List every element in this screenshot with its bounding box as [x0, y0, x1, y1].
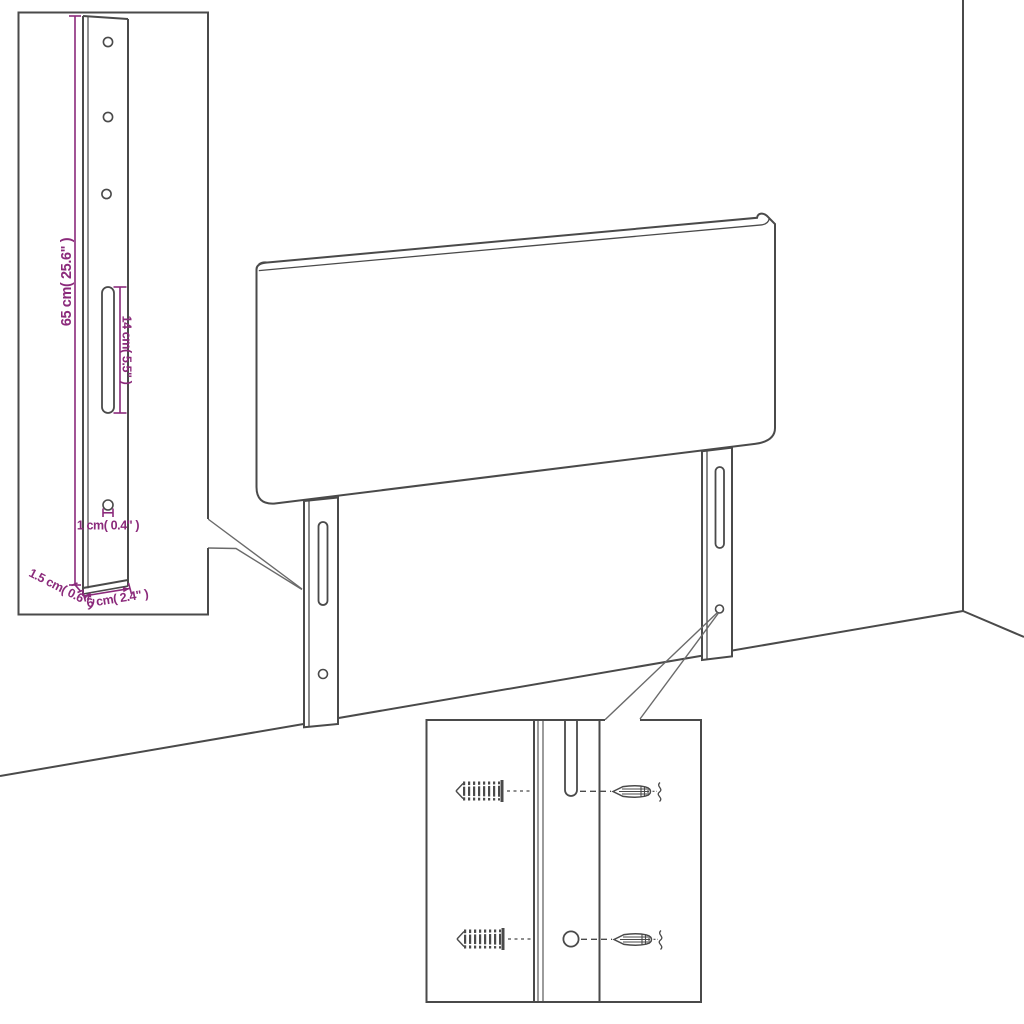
bracket-slot	[102, 287, 114, 413]
left-leg-slot	[319, 522, 328, 605]
dim-height-label: 65 cm( 25.6" )	[59, 237, 75, 326]
bottom-box-leader-line-left	[605, 613, 718, 720]
detail-box-bottom-border	[427, 720, 702, 1002]
bracket-screw-hole-3	[102, 189, 111, 198]
headboard-panel	[257, 214, 776, 504]
bottom-box-leader-line-right	[640, 613, 719, 719]
closeup-leg-hole	[563, 931, 578, 946]
left-box-leader-line-upper	[208, 519, 302, 589]
detail-box-leg-dimensions: 65 cm( 25.6" ) 14 cm( 5.5" ) 1 cm( 0.4" …	[19, 13, 209, 615]
bracket-bottom-hole	[103, 500, 113, 510]
right-leg-slot	[716, 467, 725, 548]
right-leg-hole	[716, 605, 724, 613]
detail-box-mounting-hardware	[427, 720, 702, 1002]
headboard-dimension-diagram: 65 cm( 25.6" ) 14 cm( 5.5" ) 1 cm( 0.4" …	[0, 0, 1024, 1024]
headboard-left-leg	[304, 498, 338, 728]
callout-leader-lines	[208, 519, 719, 720]
bracket-screw-hole-2	[103, 112, 112, 121]
dim-hole-label: 1 cm( 0.4" )	[77, 519, 140, 533]
diagram-canvas: 65 cm( 25.6" ) 14 cm( 5.5" ) 1 cm( 0.4" …	[0, 0, 1024, 1024]
bracket-screw-hole-1	[103, 37, 112, 46]
left-leg-hole	[319, 670, 328, 679]
dim-slot-label: 14 cm( 5.5" )	[120, 316, 134, 385]
panel-outline	[257, 214, 776, 504]
floor-line-right	[963, 611, 1024, 637]
